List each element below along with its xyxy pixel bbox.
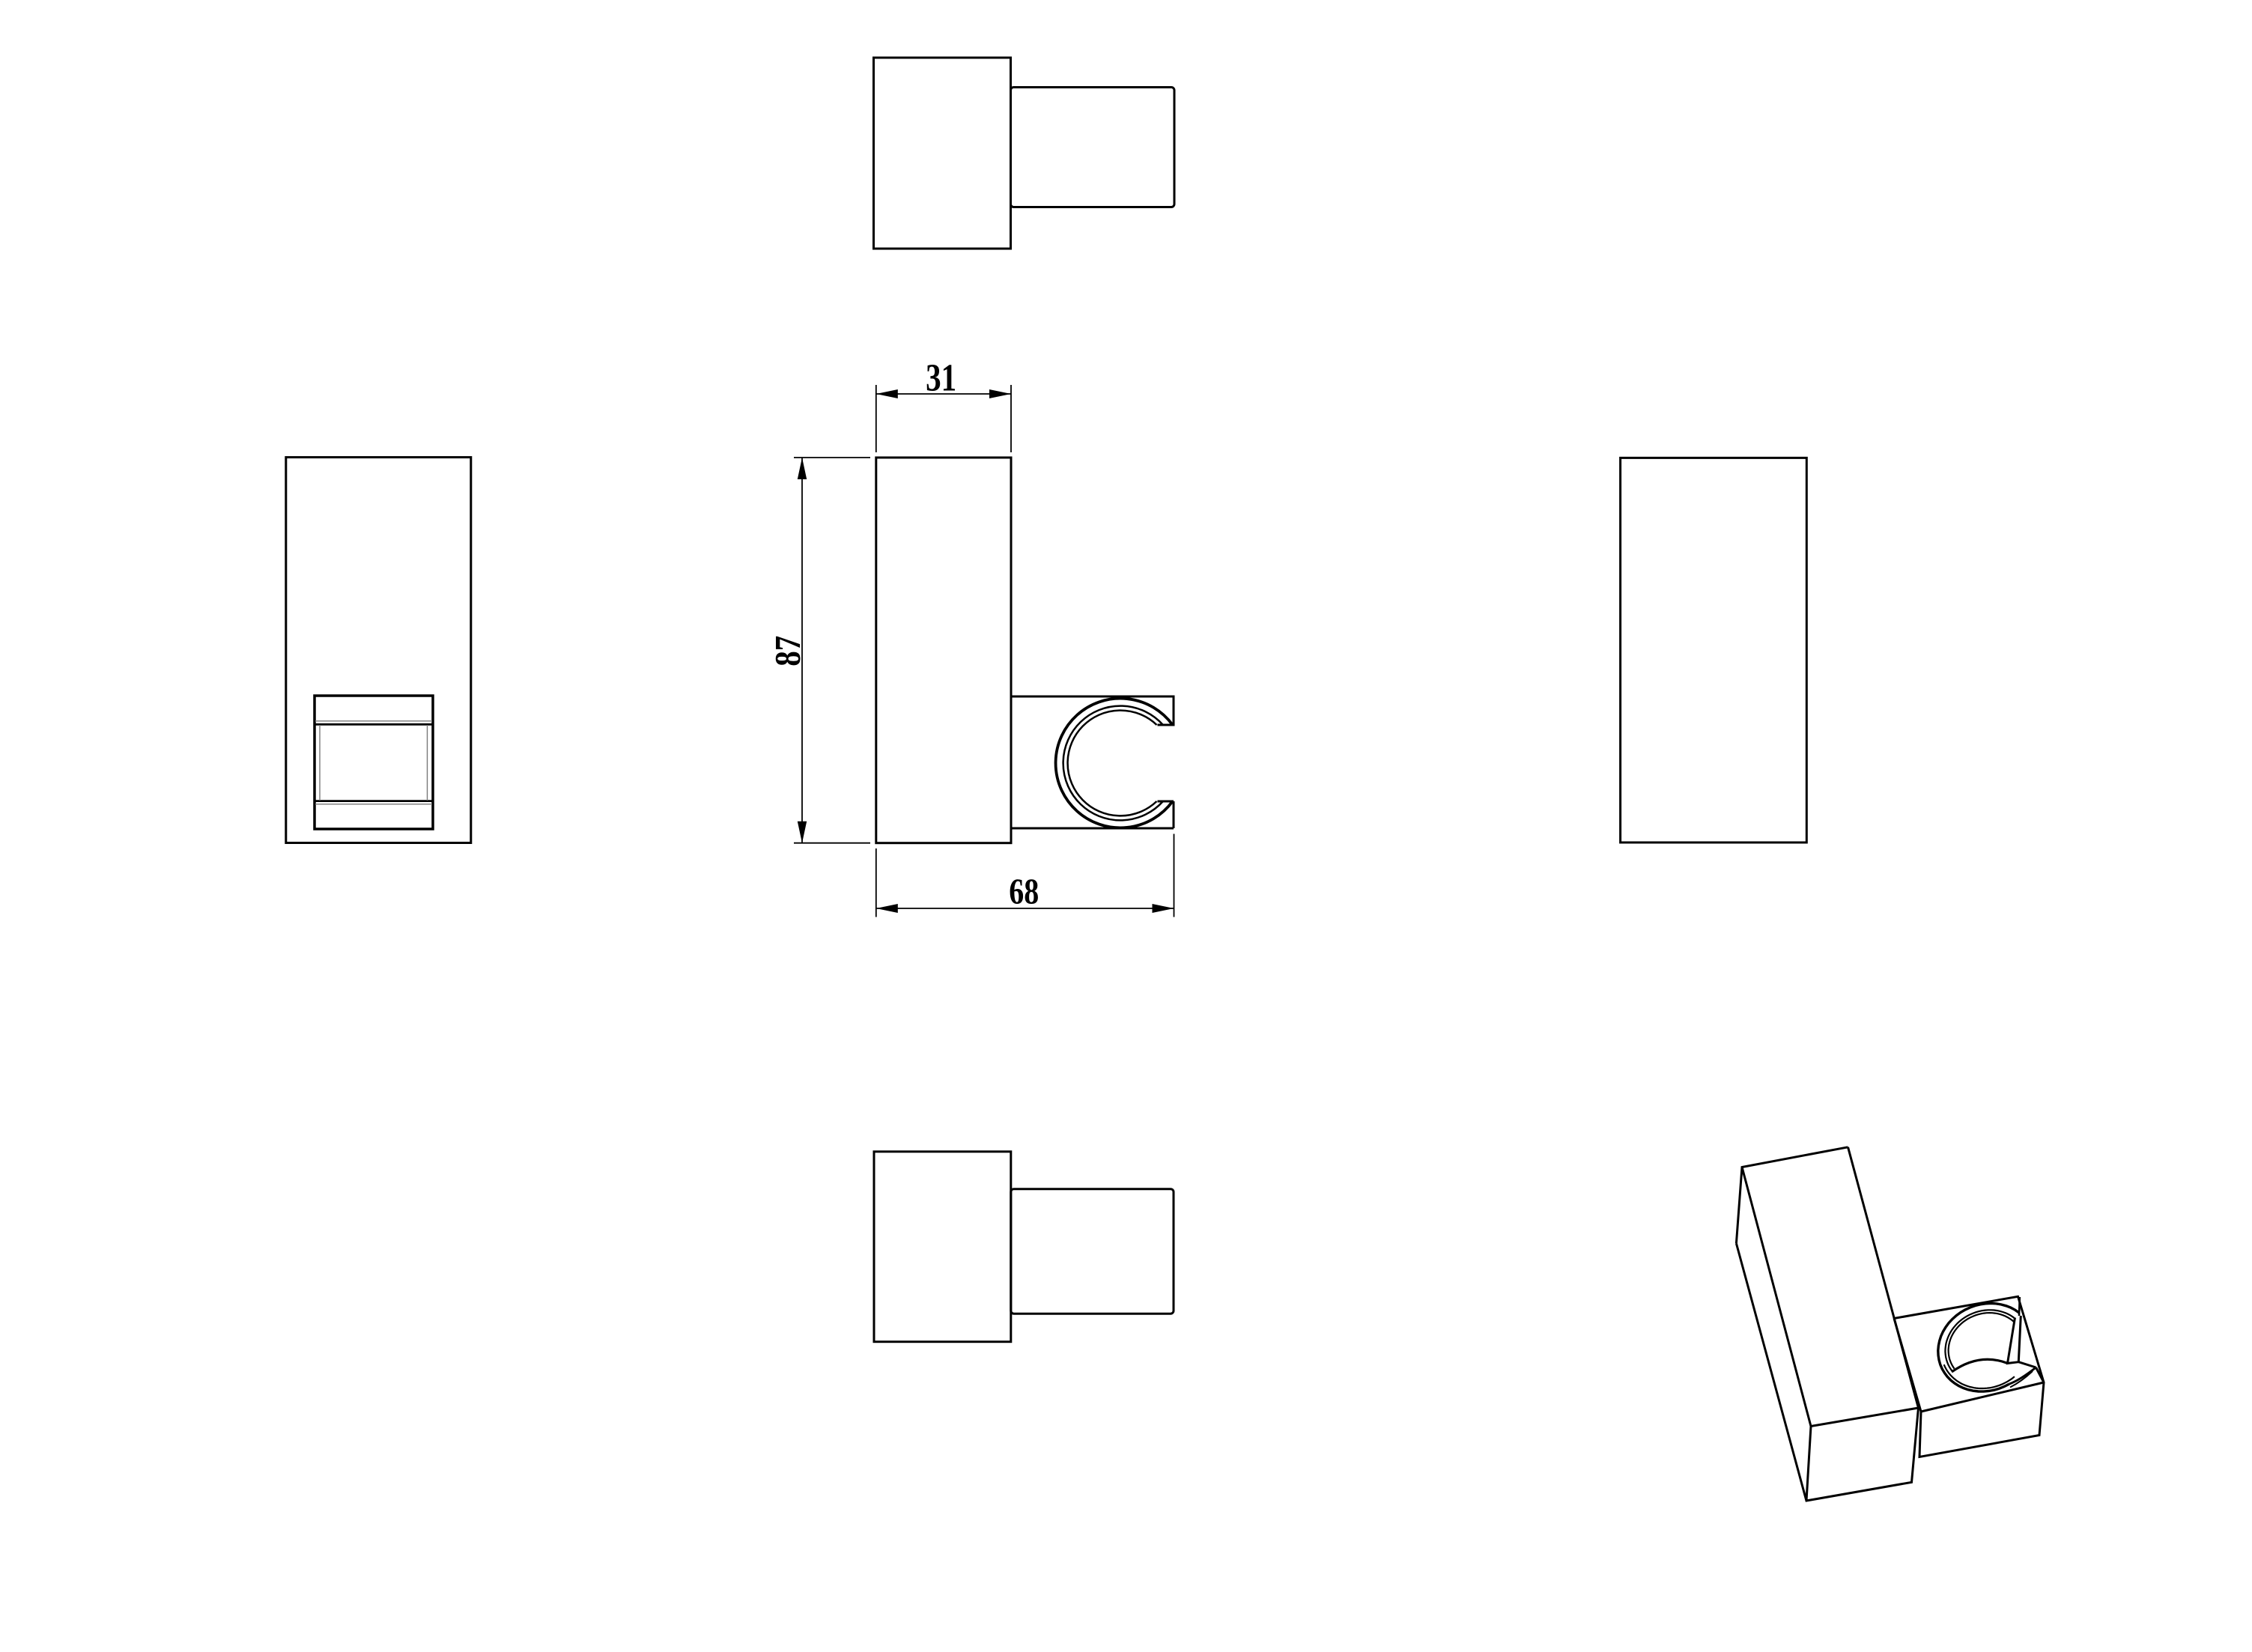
svg-text:68: 68 xyxy=(1009,870,1039,911)
svg-text:87: 87 xyxy=(767,636,808,666)
svg-text:31: 31 xyxy=(926,357,956,400)
